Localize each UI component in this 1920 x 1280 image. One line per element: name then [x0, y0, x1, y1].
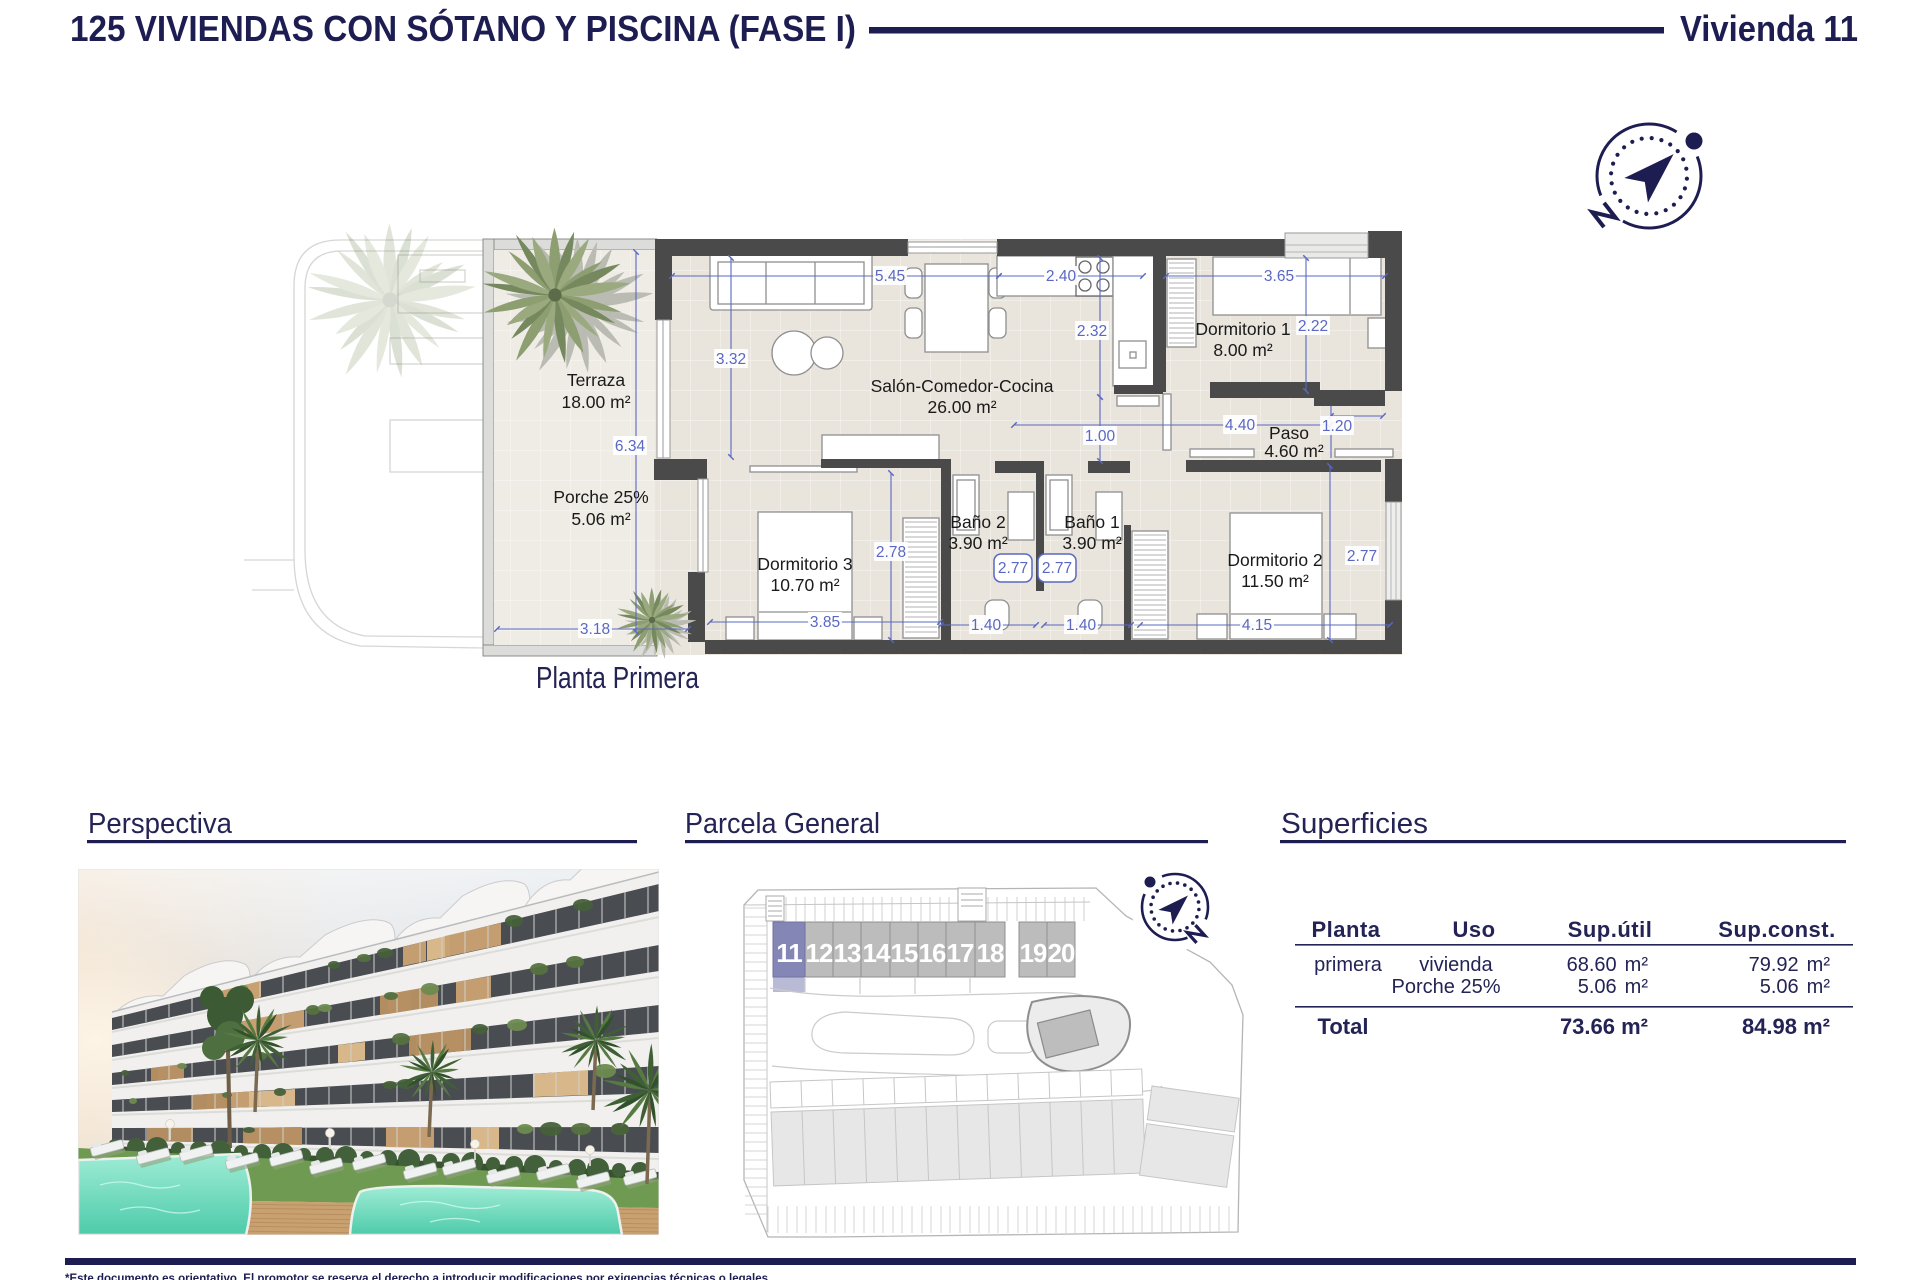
svg-text:2.77: 2.77 — [1042, 560, 1072, 577]
svg-text:2.22: 2.22 — [1298, 318, 1328, 335]
svg-text:15: 15 — [891, 938, 918, 968]
svg-text:4.15: 4.15 — [1242, 617, 1272, 634]
svg-text:12: 12 — [806, 938, 833, 968]
svg-text:Salón-Comedor-Cocina: Salón-Comedor-Cocina — [871, 376, 1054, 396]
svg-text:17: 17 — [947, 938, 974, 968]
svg-text:16: 16 — [919, 938, 946, 968]
svg-text:8.00 m²: 8.00 m² — [1213, 340, 1272, 360]
svg-text:2.77: 2.77 — [998, 560, 1028, 577]
svg-text:3.18: 3.18 — [580, 621, 610, 638]
svg-text:1.40: 1.40 — [1066, 617, 1097, 634]
svg-text:Dormitorio 3: Dormitorio 3 — [757, 554, 852, 574]
svg-text:*Este documento es orientativo: *Este documento es orientativo. El promo… — [65, 1273, 768, 1280]
svg-text:2.77: 2.77 — [1347, 548, 1377, 565]
svg-text:Terraza: Terraza — [567, 370, 626, 390]
svg-text:5.06 m²: 5.06 m² — [1760, 976, 1831, 998]
svg-text:Sup.const.: Sup.const. — [1718, 917, 1835, 942]
svg-text:125 VIVIENDAS CON SÓTANO Y PIS: 125 VIVIENDAS CON SÓTANO Y PISCINA (FASE… — [70, 7, 856, 49]
svg-text:18: 18 — [977, 938, 1004, 968]
svg-text:73.66 m²: 73.66 m² — [1560, 1014, 1648, 1039]
svg-text:primera: primera — [1314, 954, 1383, 976]
svg-text:Baño 1: Baño 1 — [1064, 512, 1119, 532]
svg-text:Total: Total — [1318, 1014, 1369, 1039]
svg-text:26.00 m²: 26.00 m² — [927, 397, 996, 417]
svg-text:Perspectiva: Perspectiva — [88, 808, 233, 840]
svg-text:1.00: 1.00 — [1085, 428, 1116, 445]
svg-text:79.92 m²: 79.92 m² — [1749, 954, 1831, 976]
svg-text:Porche 25%: Porche 25% — [1392, 976, 1501, 998]
svg-text:4.60 m²: 4.60 m² — [1264, 441, 1323, 461]
svg-text:Sup.útil: Sup.útil — [1568, 917, 1653, 942]
svg-text:10.70 m²: 10.70 m² — [770, 575, 839, 595]
svg-text:Paso: Paso — [1269, 423, 1309, 443]
svg-text:20: 20 — [1048, 938, 1075, 968]
svg-text:3.90 m²: 3.90 m² — [948, 533, 1007, 553]
svg-text:18.00 m²: 18.00 m² — [561, 392, 630, 412]
svg-text:3.65: 3.65 — [1264, 268, 1294, 285]
svg-text:3.90 m²: 3.90 m² — [1062, 533, 1121, 553]
svg-text:6.34: 6.34 — [615, 438, 646, 455]
svg-text:Superficies: Superficies — [1281, 808, 1428, 840]
svg-text:vivienda: vivienda — [1419, 954, 1493, 976]
svg-text:Dormitorio 1: Dormitorio 1 — [1195, 319, 1290, 339]
svg-text:5.06 m²: 5.06 m² — [571, 509, 630, 529]
svg-text:Dormitorio 2: Dormitorio 2 — [1227, 550, 1322, 570]
svg-text:5.06 m²: 5.06 m² — [1578, 976, 1649, 998]
svg-text:11.50 m²: 11.50 m² — [1241, 571, 1309, 591]
svg-text:1.20: 1.20 — [1322, 418, 1353, 435]
svg-text:Uso: Uso — [1452, 917, 1495, 942]
svg-text:Planta: Planta — [1311, 917, 1380, 942]
svg-text:Planta Primera: Planta Primera — [536, 660, 700, 695]
svg-text:2.40: 2.40 — [1046, 268, 1077, 285]
svg-text:3.85: 3.85 — [810, 614, 840, 631]
svg-text:Porche 25%: Porche 25% — [553, 487, 648, 507]
svg-text:1.40: 1.40 — [971, 617, 1002, 634]
svg-text:2.78: 2.78 — [876, 544, 906, 561]
svg-text:Parcela General: Parcela General — [685, 808, 880, 840]
svg-text:Baño 2: Baño 2 — [950, 512, 1005, 532]
svg-text:68.60 m²: 68.60 m² — [1567, 954, 1649, 976]
svg-text:84.98 m²: 84.98 m² — [1742, 1014, 1830, 1039]
svg-text:2.32: 2.32 — [1077, 323, 1107, 340]
svg-text:4.40: 4.40 — [1225, 417, 1256, 434]
svg-text:13: 13 — [834, 938, 861, 968]
svg-text:19: 19 — [1020, 938, 1047, 968]
svg-text:11: 11 — [776, 938, 802, 968]
svg-text:Vivienda 11: Vivienda 11 — [1680, 8, 1858, 49]
svg-text:5.45: 5.45 — [875, 268, 905, 285]
svg-text:3.32: 3.32 — [716, 351, 746, 368]
svg-text:14: 14 — [863, 938, 891, 968]
